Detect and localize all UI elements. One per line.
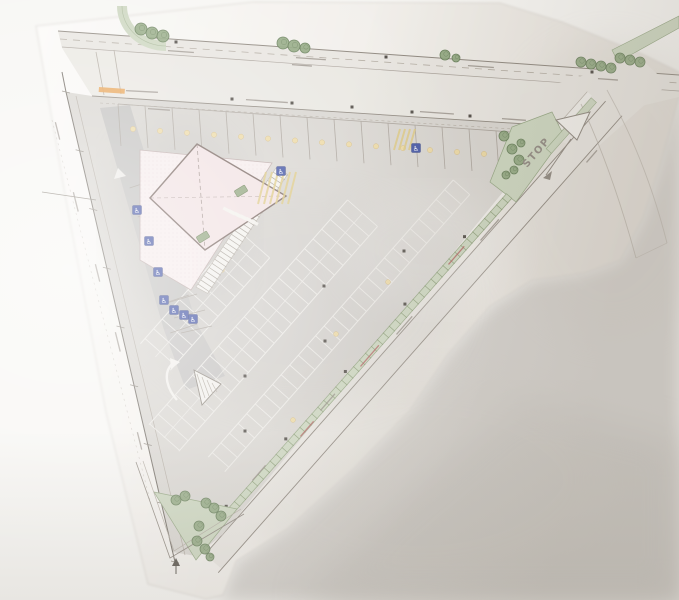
site-plan-drawing: ♿♿♿♿♿♿♿♿♿ STOP [0,0,679,600]
photo-of-site-plan: ♿♿♿♿♿♿♿♿♿ STOP [0,0,679,600]
photo-lighting-overlay [0,0,679,600]
bottom-shade [0,0,679,600]
